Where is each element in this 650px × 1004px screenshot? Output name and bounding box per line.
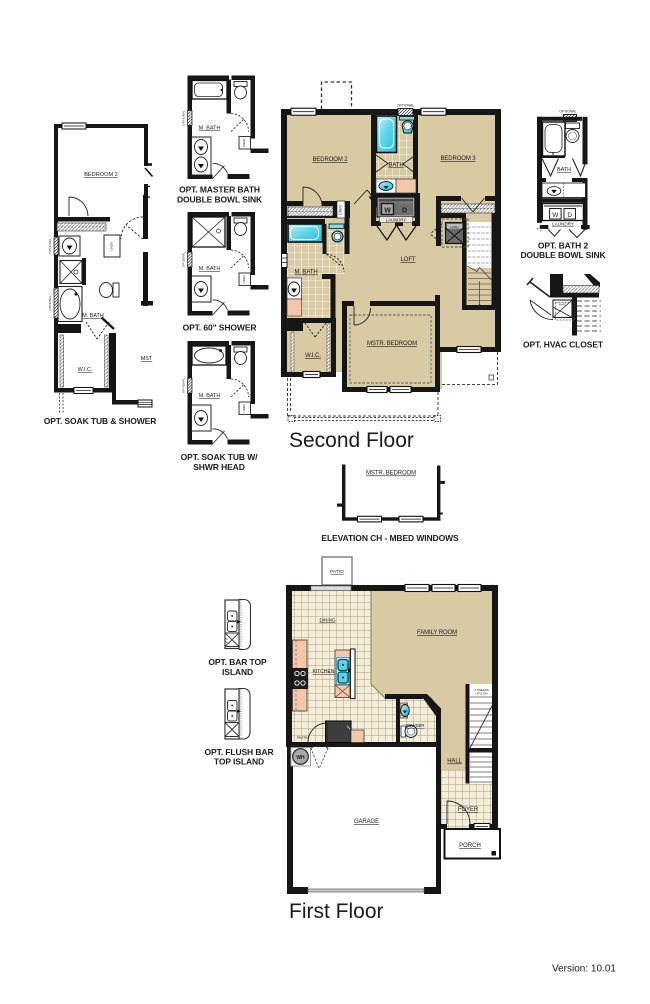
- svg-text:OPT. 60" SHOWER: OPT. 60" SHOWER: [183, 323, 257, 333]
- svg-text:DINING: DINING: [319, 618, 336, 623]
- svg-text:OPT. HVAC CLOSET: OPT. HVAC CLOSET: [523, 340, 604, 350]
- svg-text:D: D: [567, 212, 572, 219]
- svg-text:OPT. FLUSH BAR: OPT. FLUSH BAR: [205, 747, 274, 757]
- svg-text:OPTIONAL: OPTIONAL: [48, 295, 52, 311]
- svg-text:PATIO: PATIO: [330, 569, 344, 575]
- svg-text:OPTIONAL: OPTIONAL: [397, 104, 414, 108]
- svg-text:LINEN: LINEN: [110, 242, 114, 251]
- svg-text:M. BATH: M. BATH: [199, 266, 221, 272]
- svg-text:M. BATH: M. BATH: [82, 313, 104, 319]
- svg-text:W.I.C.: W.I.C.: [305, 353, 321, 359]
- svg-text:OPT. BAR TOP: OPT. BAR TOP: [208, 657, 267, 667]
- svg-text:M. BATH: M. BATH: [199, 393, 221, 399]
- svg-text:D: D: [402, 208, 407, 215]
- svg-text:KITCHEN: KITCHEN: [313, 669, 335, 675]
- svg-text:LINEN: LINEN: [242, 404, 246, 412]
- svg-text:DOUBLE BOWL SINK: DOUBLE BOWL SINK: [520, 250, 606, 260]
- svg-text:BEDROOM 3: BEDROOM 3: [440, 156, 476, 162]
- svg-text:LINEN: LINEN: [242, 139, 246, 147]
- svg-text:LOFT: LOFT: [401, 257, 416, 263]
- svg-text:GARAGE: GARAGE: [354, 819, 379, 825]
- svg-text:BATH: BATH: [557, 167, 571, 173]
- svg-text:WH: WH: [296, 755, 305, 761]
- svg-text:ISLAND: ISLAND: [222, 667, 253, 677]
- svg-text:MSTR. BEDROOM: MSTR. BEDROOM: [367, 341, 417, 347]
- svg-text:OPT. SOAK TUB W/: OPT. SOAK TUB W/: [181, 452, 259, 462]
- svg-text:OPTIONAL: OPTIONAL: [182, 378, 186, 394]
- svg-text:OPTIONAL: OPTIONAL: [48, 238, 52, 254]
- svg-text:BEDROOM 2: BEDROOM 2: [312, 157, 348, 163]
- svg-text:MSTR. BEDROOM: MSTR. BEDROOM: [366, 471, 416, 477]
- svg-text:UP & DN: UP & DN: [475, 692, 487, 696]
- svg-text:PORCH: PORCH: [459, 843, 481, 849]
- svg-text:OPTIONAL: OPTIONAL: [182, 252, 186, 268]
- svg-text:LINEN: LINEN: [242, 275, 246, 283]
- svg-text:FOYER: FOYER: [458, 807, 479, 813]
- svg-text:M. BATH: M. BATH: [294, 270, 317, 276]
- svg-text:W.I.C.: W.I.C.: [78, 367, 93, 373]
- svg-text:W: W: [552, 212, 559, 219]
- svg-text:OPT. SOAK TUB & SHOWER: OPT. SOAK TUB & SHOWER: [44, 416, 157, 426]
- svg-text:OPT. MASTER BATH: OPT. MASTER BATH: [179, 185, 260, 195]
- svg-text:ELEVATION CH - MBED WINDOWS: ELEVATION CH - MBED WINDOWS: [321, 533, 459, 543]
- svg-text:POWDER: POWDER: [406, 723, 425, 728]
- svg-text:PNTRY: PNTRY: [297, 736, 309, 740]
- svg-text:DOUBLE BOWL SINK: DOUBLE BOWL SINK: [177, 195, 263, 205]
- svg-text:LAUNDRY: LAUNDRY: [552, 222, 574, 227]
- svg-text:OPTIONAL: OPTIONAL: [182, 110, 186, 126]
- svg-text:LINEN: LINEN: [339, 204, 343, 215]
- svg-text:HALL: HALL: [447, 759, 462, 765]
- svg-text:BATH: BATH: [388, 163, 403, 169]
- svg-text:BEDROOM 2: BEDROOM 2: [84, 172, 118, 178]
- svg-text:OPTIONAL: OPTIONAL: [559, 110, 576, 114]
- svg-text:Second Floor: Second Floor: [289, 429, 414, 452]
- svg-text:W: W: [384, 208, 391, 215]
- svg-text:Version: 10.01: Version: 10.01: [552, 964, 616, 975]
- svg-text:TOP ISLAND: TOP ISLAND: [214, 757, 264, 767]
- svg-text:MST: MST: [141, 356, 153, 362]
- svg-text:OPT. BATH 2: OPT. BATH 2: [538, 241, 589, 251]
- svg-text:SHWR HEAD: SHWR HEAD: [193, 462, 245, 472]
- svg-text:M. BATH: M. BATH: [199, 126, 221, 132]
- svg-text:FAMILY ROOM: FAMILY ROOM: [417, 630, 457, 636]
- svg-text:HVAC: HVAC: [450, 225, 459, 229]
- svg-text:First Floor: First Floor: [289, 900, 384, 923]
- svg-text:LAUNDRY: LAUNDRY: [386, 218, 407, 223]
